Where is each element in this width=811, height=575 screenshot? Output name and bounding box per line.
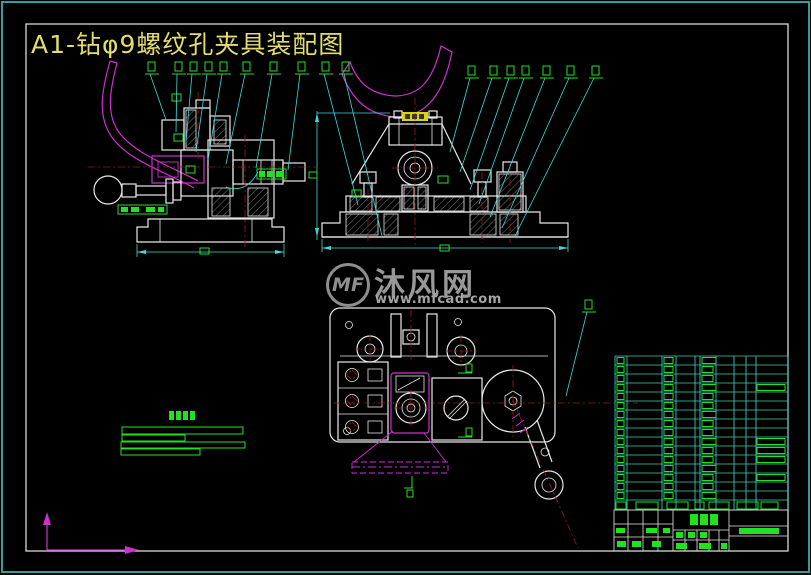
sheet-frame — [26, 24, 788, 551]
drawing-geometry — [0, 0, 811, 575]
front-view — [309, 46, 568, 252]
titleblock-part-name — [690, 514, 718, 525]
tech-notes — [121, 411, 245, 455]
ucs-icon — [43, 512, 139, 554]
handle-ring — [535, 471, 563, 499]
base-plate — [137, 219, 284, 242]
workpiece-phantom-bar — [352, 462, 448, 473]
section-mark — [404, 364, 472, 497]
plan-view — [330, 308, 638, 548]
drawing-title: A1-钻φ9螺纹孔夹具装配图 — [31, 25, 344, 61]
handle-lever — [102, 61, 194, 188]
hand-knob — [94, 176, 122, 204]
bom-table — [615, 356, 788, 510]
dimension-label — [118, 205, 167, 214]
balloon-markers — [145, 62, 603, 312]
outer-border — [2, 2, 809, 572]
titleblock-entries — [616, 528, 779, 549]
crescent-workpiece — [342, 46, 452, 117]
cad-drawing-sheet: A1-钻φ9螺纹孔夹具装配图 MF 沐风网 www.mfcad.com — [0, 0, 811, 575]
title-block — [614, 510, 788, 551]
side-view — [88, 61, 316, 257]
